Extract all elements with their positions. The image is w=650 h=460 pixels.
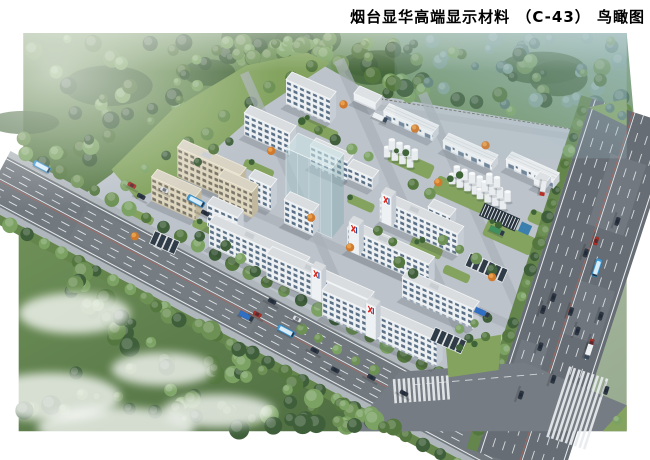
aerial-rendering <box>0 33 650 460</box>
rendering-page: 烟台显华高端显示材料 （C-43） 鸟瞰图 <box>0 0 650 460</box>
page-title: 烟台显华高端显示材料 （C-43） 鸟瞰图 <box>350 6 645 27</box>
title-bar: 烟台显华高端显示材料 （C-43） 鸟瞰图 <box>0 0 650 33</box>
